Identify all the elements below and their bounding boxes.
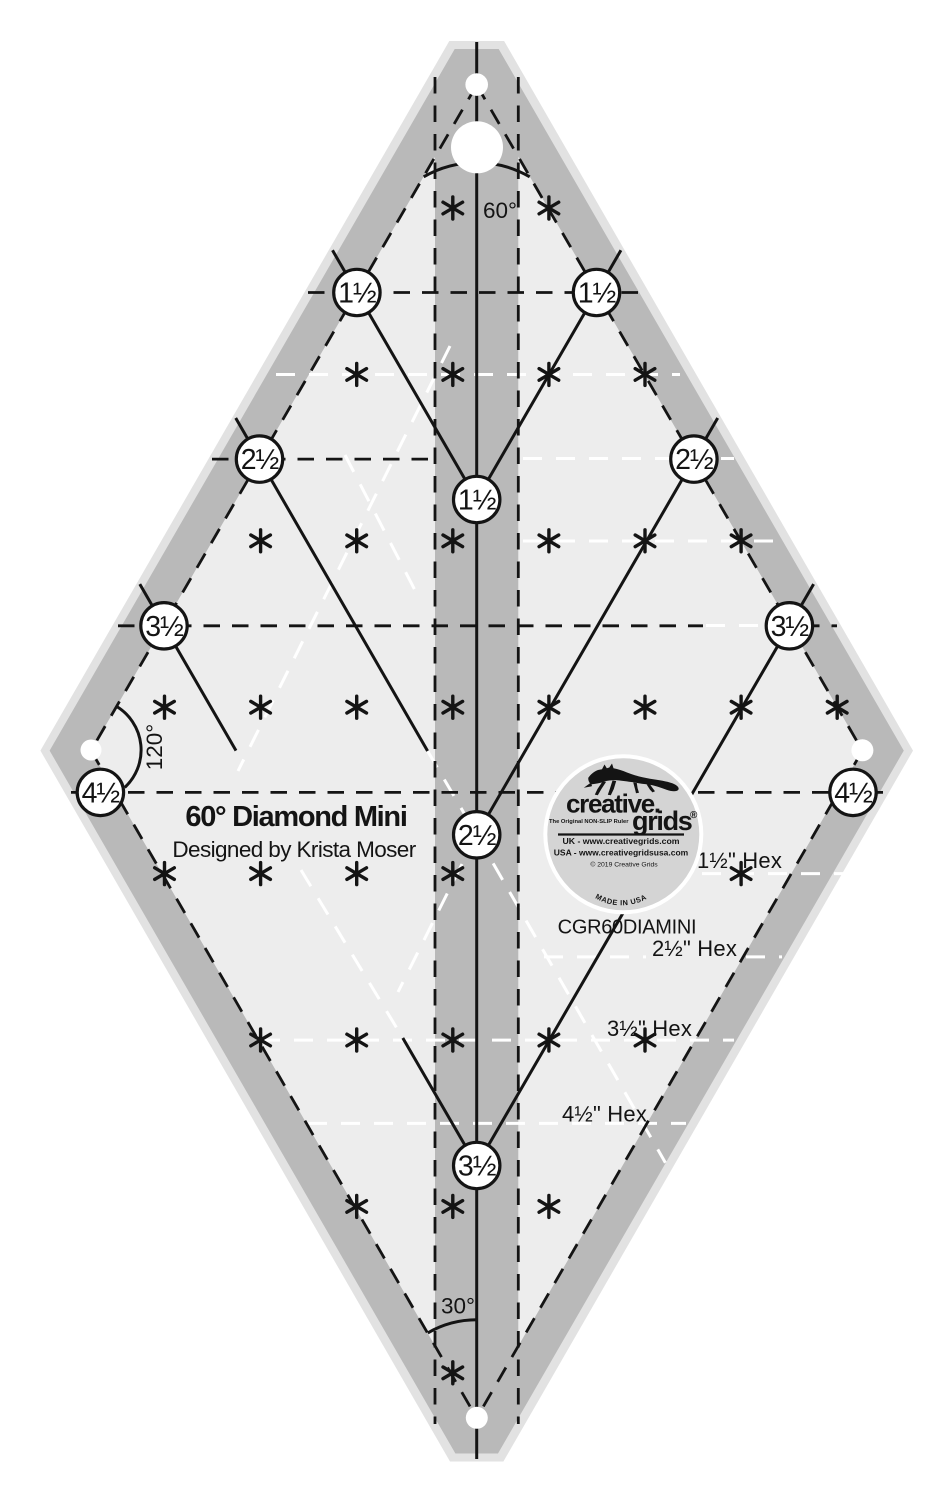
svg-text:4½: 4½ [82,777,120,809]
svg-text:The Original NON-SLIP Ruler: The Original NON-SLIP Ruler [549,819,629,825]
svg-text:30°: 30° [441,1294,475,1319]
svg-text:1½: 1½ [578,278,616,310]
svg-text:UK - www.creativegrids.com: UK - www.creativegrids.com [563,836,680,846]
svg-text:grids: grids [632,806,692,836]
svg-text:1½" Hex: 1½" Hex [697,848,782,873]
svg-text:USA - www.creativegridsusa.com: USA - www.creativegridsusa.com [554,848,689,858]
svg-text:2½: 2½ [241,444,279,476]
svg-text:3½" Hex: 3½" Hex [607,1016,692,1041]
svg-text:4½" Hex: 4½" Hex [562,1102,647,1127]
svg-text:3½: 3½ [145,611,183,643]
svg-text:1½: 1½ [338,278,376,310]
svg-text:3½: 3½ [458,1151,496,1183]
svg-text:2½: 2½ [458,820,496,852]
svg-text:3½: 3½ [771,611,809,643]
svg-text:4½: 4½ [834,777,872,809]
svg-text:®: ® [690,810,698,821]
svg-text:© 2019 Creative Grids: © 2019 Creative Grids [590,861,658,869]
svg-text:2½: 2½ [675,444,713,476]
svg-text:1½: 1½ [458,485,496,517]
svg-text:Designed by Krista Moser: Designed by Krista Moser [172,837,416,862]
svg-text:2½" Hex: 2½" Hex [652,936,737,961]
svg-text:120°: 120° [142,724,167,771]
svg-text:60° Diamond Mini: 60° Diamond Mini [185,801,406,833]
svg-text:60°: 60° [483,198,517,223]
